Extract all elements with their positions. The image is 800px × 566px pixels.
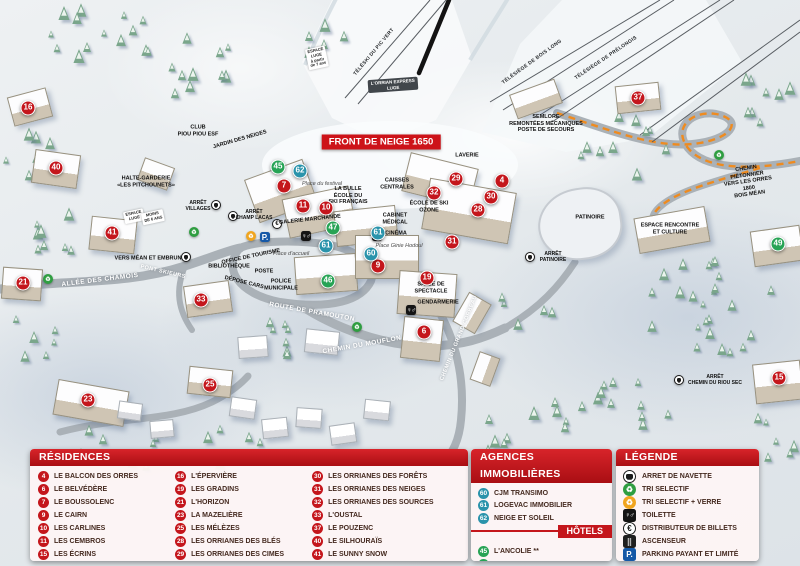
tree: [183, 32, 192, 44]
agences-hotels-panel: AGENCES IMMOBILIÈRES 60CJM TRANSIMO61LOG…: [471, 449, 612, 561]
recycle-yellow-icon: ♻: [246, 231, 256, 241]
bus-icon: [181, 252, 191, 262]
parking-icon: P.: [260, 232, 270, 242]
map-marker-47: 47: [326, 221, 341, 236]
building: [261, 417, 289, 440]
item-number-badge: 62: [478, 513, 489, 524]
map-label: CINÉMA: [385, 231, 407, 238]
list-item: 7LE BOUSSOLENC: [38, 496, 175, 509]
list-item: 25LES MÉLÈZES: [175, 522, 312, 535]
tree: [40, 240, 48, 250]
building: [615, 82, 662, 114]
tree: [149, 439, 155, 447]
legende-label: ARRET DE NAVETTE: [642, 473, 712, 480]
map-marker-61: 61: [371, 226, 386, 241]
tree: [320, 39, 328, 49]
tree: [552, 405, 562, 417]
map-label: DÉPOSE CARS: [224, 275, 264, 291]
legende-label: TRI SELECTIF + VERRE: [642, 499, 721, 506]
list-item: 33L'OUSTAL: [312, 509, 464, 522]
tree: [705, 314, 713, 324]
map-label: LAVERIE: [455, 153, 478, 160]
item-number-badge: 41: [312, 549, 323, 560]
snow-front-plaza: [262, 121, 518, 209]
tree: [608, 141, 618, 153]
list-item: 11LES CEMBROS: [38, 535, 175, 548]
list-item: 21L'HORIZON: [175, 496, 312, 509]
tree: [563, 417, 570, 425]
tree: [716, 272, 723, 280]
map-marker-61: 61: [319, 239, 334, 254]
tree: [773, 437, 779, 444]
list-item: 61LOGEVAC IMMOBILIER: [478, 500, 607, 513]
euro-icon: €: [272, 219, 282, 229]
map-label: Place d'accueil: [273, 251, 310, 257]
toilet-icon: ♀♂: [623, 509, 636, 522]
map-label: Place du festival: [302, 181, 342, 187]
map-label: BIBLIOTHÈQUE: [208, 264, 250, 271]
tree: [304, 46, 313, 58]
tree: [705, 261, 712, 269]
tree: [116, 34, 126, 46]
list-item: 29LES ORRIANES DES CIMES: [175, 548, 312, 561]
list-item: 16L'ÉPERVIÈRE: [175, 470, 312, 483]
map-marker-28: 28: [471, 203, 486, 218]
map-label: CHEMIN DU MOUFLON: [322, 335, 402, 356]
building: [750, 225, 800, 268]
tree: [142, 44, 151, 56]
tree: [63, 208, 74, 221]
tree: [756, 118, 763, 127]
tree: [33, 227, 43, 240]
map-marker-6: 6: [417, 325, 432, 340]
tree: [578, 400, 586, 410]
item-label: LES GRADINS: [191, 486, 239, 493]
tree: [305, 31, 313, 41]
tree: [270, 325, 277, 333]
tree: [153, 434, 159, 442]
item-label: L'HORIZON: [191, 499, 229, 506]
tree: [101, 29, 107, 36]
map-label: ARRÊT PATINOIRE: [540, 251, 566, 264]
tree: [775, 88, 784, 100]
tree: [674, 286, 684, 299]
legende-item: ⣿ASCENSEUR: [623, 535, 754, 548]
item-number-badge: 16: [175, 471, 186, 482]
map-label: ALLÉE DES CHAMOIS: [61, 272, 139, 288]
map-label: TÉLÉSIÈGE DE BOIS LONG: [501, 38, 563, 85]
legende-label: TRI SELECTIF: [642, 486, 689, 493]
tree: [631, 114, 641, 126]
item-number-badge: 9: [38, 510, 49, 521]
list-item: 10LES CARLINES: [38, 522, 175, 535]
building: [470, 351, 501, 387]
building: [7, 87, 53, 126]
tree: [678, 258, 687, 270]
tree: [34, 221, 40, 228]
building: [187, 366, 234, 398]
map-marker-37: 37: [631, 91, 646, 106]
map-marker-21: 21: [16, 276, 31, 291]
map-marker-60: 60: [364, 247, 379, 262]
tree: [24, 128, 35, 141]
tree: [48, 30, 54, 37]
tree: [283, 348, 291, 358]
tree: [13, 315, 19, 323]
map-marker-30: 30: [484, 190, 499, 205]
tree: [608, 398, 616, 408]
map-label: Place Ginie Hodoul: [375, 243, 422, 249]
toilet-icon: ♀♂: [406, 305, 416, 315]
tree: [548, 307, 557, 318]
roads: [0, 113, 800, 460]
tree: [593, 392, 603, 405]
legende-label: DISTRIBUTEUR DE BILLETS: [642, 525, 737, 532]
map-marker-16: 16: [21, 101, 36, 116]
tree: [503, 432, 512, 443]
map-marker-46: 46: [321, 274, 336, 289]
map-marker-15: 15: [772, 371, 787, 386]
item-label: LOGEVAC IMMOBILIER: [494, 502, 572, 509]
tree: [746, 74, 755, 85]
residences-panel: RÉSIDENCES 4LE BALCON DES ORRES6LE BELVÉ…: [30, 449, 468, 561]
tree: [178, 70, 186, 80]
tubing-cable: [419, 0, 449, 73]
tree: [728, 299, 737, 310]
tree: [203, 431, 213, 443]
map-label: OFFICE DE TOURISME: [221, 248, 281, 267]
item-number-badge: 23: [175, 510, 186, 521]
map-label: GENDARMERIE: [417, 300, 458, 307]
tree: [501, 299, 507, 307]
tree: [32, 151, 41, 163]
parking-icon: P.: [623, 548, 636, 561]
map-label: TÉLÉSIÈGE DE PRÉLONGIS: [574, 35, 639, 81]
recycle-green-icon: ♻: [623, 483, 636, 496]
recycle-yellow-icon: ♻: [623, 496, 636, 509]
toilet-icon: ♀♂: [372, 231, 382, 241]
item-label: LE SUNNY SNOW: [328, 551, 387, 558]
item-label: CJM TRANSIMO: [494, 490, 548, 497]
legende-item: ♀♂TOILETTE: [623, 509, 754, 522]
item-label: LES MÉLÈZES: [191, 525, 240, 532]
map-label: CABINET MÉDICAL: [382, 212, 407, 225]
building: [509, 79, 563, 120]
tree: [763, 88, 770, 97]
tree: [68, 246, 76, 255]
item-number-badge: 28: [175, 536, 186, 547]
hotels-divider: HÔTELS: [471, 530, 612, 538]
list-item: 31LES ORRIANES DES NEIGES: [312, 483, 464, 496]
building: [421, 178, 517, 244]
tree: [498, 292, 505, 301]
item-label: LE BELVÉDÈRE: [54, 486, 107, 493]
building: [397, 270, 458, 318]
tree: [52, 326, 59, 334]
tree: [551, 397, 559, 407]
tree: [62, 242, 68, 250]
building: [117, 400, 143, 421]
list-item: 32LES ORRIANES DES SOURCES: [312, 496, 464, 509]
tree: [743, 107, 752, 118]
tree: [216, 425, 223, 434]
building: [752, 360, 800, 405]
residences-columns: 4LE BALCON DES ORRES6LE BELVÉDÈRE7LE BOU…: [30, 466, 468, 561]
building: [400, 316, 444, 362]
tree: [282, 345, 291, 356]
tree: [21, 350, 30, 362]
item-label: LES ORRIANES DES BLÉS: [191, 538, 280, 545]
tree: [187, 68, 198, 82]
list-item: 46LES ECRINS **: [478, 558, 607, 561]
item-number-badge: 46: [478, 559, 489, 561]
building: [633, 206, 710, 254]
map-marker-33: 33: [194, 293, 209, 308]
tree: [746, 329, 755, 340]
tree: [583, 141, 592, 153]
tree: [740, 342, 747, 351]
tree: [648, 288, 655, 297]
tree: [266, 317, 274, 327]
tree: [285, 325, 291, 333]
tree: [84, 424, 93, 435]
list-item: 15LES ÉCRINS: [38, 548, 175, 561]
item-label: LES ORRIANES DES CIMES: [191, 551, 284, 558]
tree: [169, 63, 176, 72]
tree: [609, 377, 617, 387]
tree: [500, 438, 508, 448]
item-number-badge: 11: [38, 536, 49, 547]
tree: [489, 434, 500, 447]
tree: [695, 323, 701, 330]
tree: [561, 421, 569, 431]
building: [304, 328, 340, 355]
item-number-badge: 32: [312, 497, 323, 508]
tree: [256, 437, 263, 446]
map-marker-10: 10: [319, 201, 334, 216]
tree: [642, 126, 650, 136]
tree: [748, 107, 756, 118]
legende-item: ♻TRI SELECTIF: [623, 483, 754, 496]
tree: [74, 49, 85, 63]
map-label: LA BULLE ÉCOLE DU SKI FRANÇAIS: [328, 186, 367, 206]
tree: [43, 351, 49, 359]
map-label: ÉCOLE DE SKI OZONE: [410, 200, 449, 213]
legende-item: €DISTRIBUTEUR DE BILLETS: [623, 522, 754, 535]
building: [294, 253, 358, 295]
tree: [58, 6, 69, 20]
item-number-badge: 30: [312, 471, 323, 482]
tree: [700, 301, 706, 308]
tree: [45, 137, 55, 149]
list-item: 40LE SILHOURAÏS: [312, 535, 464, 548]
elevator-icon: ⣿: [623, 535, 636, 548]
item-label: LE CAIRN: [54, 512, 87, 519]
list-item: 4LE BALCON DES ORRES: [38, 470, 175, 483]
map-label: ESPACE LUGE: [123, 208, 145, 224]
bus-icon: [525, 252, 535, 262]
legende-title: LÉGENDE: [616, 449, 759, 466]
tree: [693, 342, 700, 351]
euro-icon: €: [623, 522, 636, 535]
map-marker-25: 25: [203, 378, 218, 393]
item-label: L'ANCOLIE **: [494, 548, 539, 555]
building: [149, 419, 174, 439]
tree: [703, 317, 710, 326]
legende-label: ASCENSEUR: [642, 538, 686, 545]
agences-list: 60CJM TRANSIMO61LOGEVAC IMMOBILIER62NEIG…: [471, 483, 612, 525]
recycle-green-icon: ♻: [352, 322, 362, 332]
toilet-icon: ♀♂: [301, 231, 311, 241]
list-item: 28LES ORRIANES DES BLÉS: [175, 535, 312, 548]
tree: [53, 44, 60, 53]
map-marker-62: 62: [293, 164, 308, 179]
map-label: ARRÊT CHEMIN DU RIOU SEC: [688, 374, 742, 387]
item-number-badge: 45: [478, 546, 489, 557]
tree: [600, 380, 607, 389]
ice-rink-building: [533, 183, 626, 266]
pedestrian-path: [557, 113, 800, 228]
item-number-badge: 7: [38, 497, 49, 508]
item-label: L'ÉPERVIÈRE: [191, 473, 237, 480]
tree: [705, 327, 715, 339]
tree: [282, 338, 289, 347]
map-label: GALERIE MARCHANDE: [279, 213, 341, 226]
tree: [540, 304, 548, 314]
legende-item: ♻TRI SELECTIF + VERRE: [623, 496, 754, 509]
legende-item: P.PARKING PAYANT ET LIMITÉ: [623, 548, 754, 561]
tree: [29, 331, 39, 343]
tree: [221, 69, 232, 82]
tree: [711, 256, 719, 266]
map-label: ESPACE RENCONTRE ET CULTURE: [641, 222, 700, 235]
building: [88, 216, 137, 255]
tree: [635, 378, 642, 386]
legende-item: ARRET DE NAVETTE: [623, 470, 754, 483]
tree: [3, 156, 9, 163]
item-number-badge: 25: [175, 523, 186, 534]
list-item: 37LE POUZENC: [312, 522, 464, 535]
map-label: POSTE: [255, 269, 274, 276]
building: [329, 422, 358, 445]
legende-list: ARRET DE NAVETTE♻TRI SELECTIF♻TRI SELECT…: [616, 466, 759, 561]
item-number-badge: 6: [38, 484, 49, 495]
map-label: VERS MÉAN ET EMBRUN: [115, 256, 182, 263]
building: [452, 292, 492, 334]
tree: [129, 24, 138, 35]
item-label: NEIGE ET SOLEIL: [494, 515, 554, 522]
building: [333, 205, 398, 247]
building: [282, 185, 357, 238]
map-label: L'ORRIAN EXPRESS LUGE: [368, 77, 419, 94]
tree: [513, 318, 522, 330]
map-marker-11: 11: [296, 199, 311, 214]
tree: [638, 411, 646, 421]
list-item: 62NEIGE ET SOLEIL: [478, 512, 607, 525]
ski-lifts: [345, 0, 800, 142]
tree: [786, 448, 793, 457]
residences-title: RÉSIDENCES: [30, 449, 468, 466]
list-item: 30LES ORRIANES DES FORÊTS: [312, 470, 464, 483]
list-item: 23LA MAZELIÈRE: [175, 509, 312, 522]
tree: [528, 406, 539, 420]
map-label: ROUTE DE PRAMOUTON: [269, 301, 356, 323]
tree: [121, 11, 127, 19]
residences-column: 30LES ORRIANES DES FORÊTS31LES ORRIANES …: [312, 470, 464, 561]
map-label: CHEMIN DU GRAND CORBEAU: [439, 295, 479, 382]
tree: [99, 434, 107, 444]
item-label: LES ORRIANES DES SOURCES: [328, 499, 433, 506]
building: [244, 159, 318, 223]
tree: [144, 46, 151, 55]
tree: [597, 386, 607, 398]
tree: [789, 440, 799, 452]
tree: [339, 31, 348, 42]
list-item: 45L'ANCOLIE **: [478, 546, 607, 559]
list-item: 41LE SUNNY SNOW: [312, 548, 464, 561]
building: [401, 152, 479, 208]
tree: [614, 110, 624, 122]
item-number-badge: 15: [38, 549, 49, 560]
tree: [140, 16, 147, 25]
item-number-badge: 31: [312, 484, 323, 495]
tree: [784, 82, 795, 96]
ski-slope-right: [482, 0, 742, 152]
map-label: POLICE MUNICIPALE: [264, 278, 298, 291]
list-item: 9LE CAIRN: [38, 509, 175, 522]
hotels-list: 45L'ANCOLIE **46LES ECRINS **47L'ESCALE …: [471, 542, 612, 562]
tree: [740, 72, 751, 85]
bus-icon: [211, 200, 221, 210]
item-number-badge: 19: [175, 484, 186, 495]
tree: [219, 70, 227, 80]
tree: [596, 146, 604, 157]
legende-label: PARKING PAYANT ET LIMITÉ: [642, 551, 738, 558]
tree: [225, 43, 231, 50]
item-number-badge: 40: [312, 536, 323, 547]
ski-slope-left: [302, 0, 472, 142]
map-marker-40: 40: [49, 161, 64, 176]
map-label: CLUB PIOU PIOU ESF: [178, 124, 219, 137]
map-marker-4: 4: [495, 174, 510, 189]
tree: [31, 130, 41, 143]
item-label: LES ÉCRINS: [54, 551, 96, 558]
tree: [320, 18, 331, 32]
bus-icon: [228, 211, 238, 221]
recycle-green-icon: ♻: [189, 227, 199, 237]
tree: [245, 432, 253, 443]
item-label: LES CEMBROS: [54, 538, 105, 545]
list-item: 19LES GRADINS: [175, 483, 312, 496]
map-label: JARDIN DES NEIGES: [212, 129, 267, 151]
tree: [171, 88, 179, 98]
residences-column: 4LE BALCON DES ORRES6LE BELVÉDÈRE7LE BOU…: [38, 470, 175, 561]
building: [183, 280, 233, 318]
item-label: LE BALCON DES ORRES: [54, 473, 138, 480]
item-label: LE POUZENC: [328, 525, 373, 532]
item-label: LA MAZELIÈRE: [191, 512, 242, 519]
item-number-badge: 37: [312, 523, 323, 534]
item-number-badge: 61: [478, 500, 489, 511]
building: [52, 379, 129, 427]
map-marker-41: 41: [105, 226, 120, 241]
resort-map: ♻♻♻♻♻P.€♀♂♀♂♀♂ FRONT DE NEIGE 1650TÉLÉSK…: [0, 0, 800, 566]
tree: [83, 42, 91, 52]
tree: [578, 150, 585, 159]
hotels-title: HÔTELS: [558, 525, 612, 538]
tree: [711, 283, 719, 293]
item-label: LES ORRIANES DES NEIGES: [328, 486, 425, 493]
